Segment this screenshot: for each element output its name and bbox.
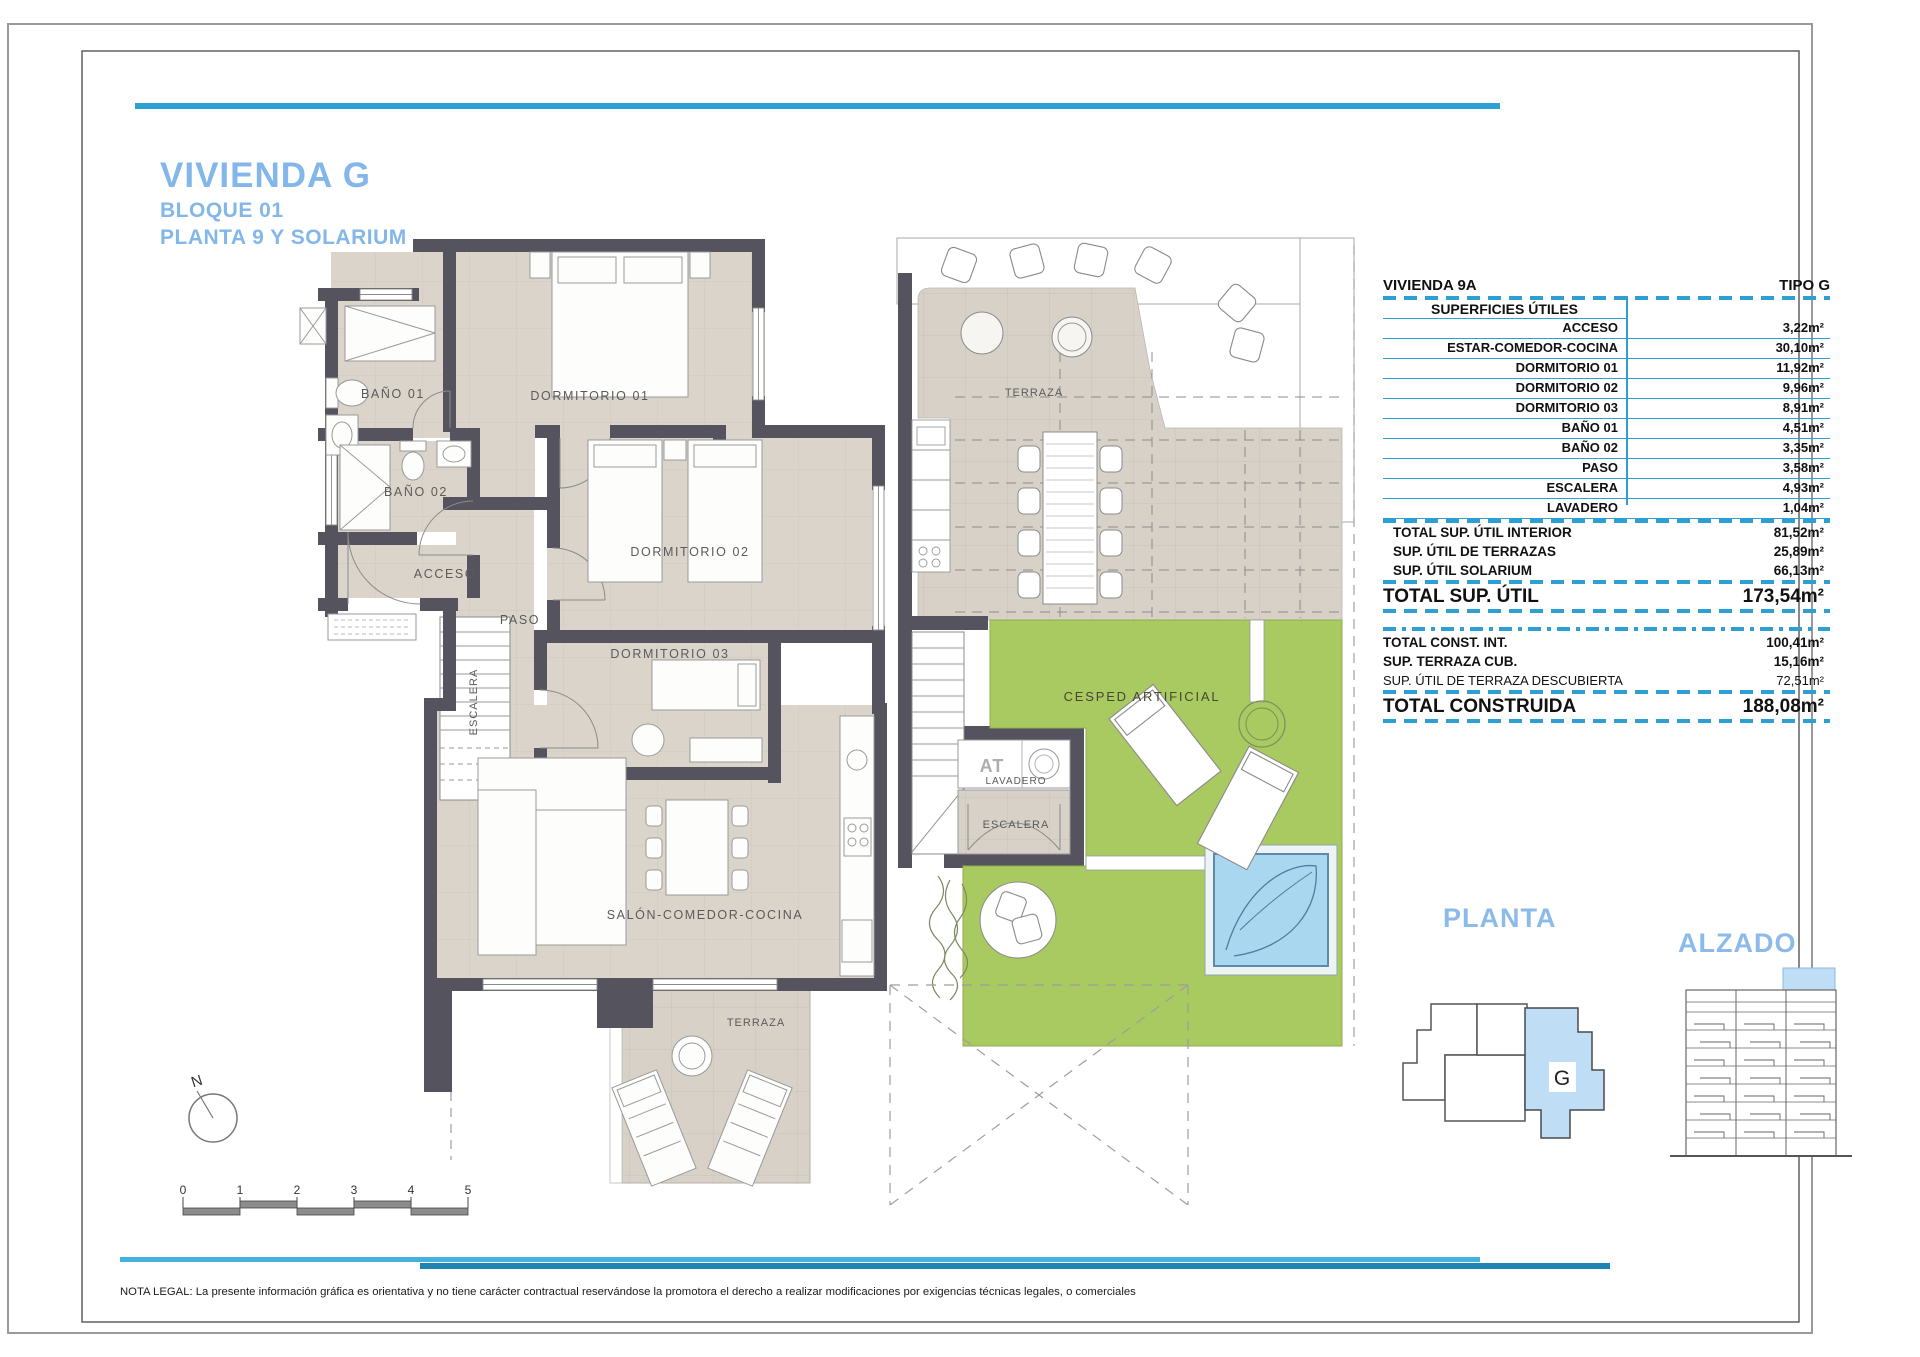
alzado-label: ALZADO (1678, 928, 1796, 959)
page-title: VIVIENDA G (160, 156, 407, 196)
jacuzzi (1205, 845, 1337, 975)
subtotal-row: TOTAL SUP. ÚTIL INTERIOR81,52m² (1383, 523, 1830, 542)
table-row: ESTAR-COMEDOR-COCINA30,10m² (1383, 339, 1830, 359)
solarium-lavadero-label: LAVADERO (986, 776, 1047, 787)
floor-subtitle: PLANTA 9 Y SOLARIUM (160, 226, 407, 250)
table-row: ESCALERA4,93m² (1383, 479, 1830, 499)
unit-type: TIPO G (1779, 277, 1830, 294)
room-label-bano02: BAÑO 02 (384, 485, 448, 499)
table-row: BAÑO 023,35m² (1383, 439, 1830, 459)
table-column-divider (1626, 296, 1628, 505)
keyplan-unit-letter: G (1554, 1067, 1570, 1090)
room-label-acceso: ACCESO (414, 567, 476, 581)
solarium-plan: AT LAVADERO ESCALERA (890, 238, 1354, 1205)
built-row: SUP. ÚTIL DE TERRAZA DESCUBIERTA72,51m² (1383, 671, 1830, 690)
table-row: LAVADERO1,04m² (1383, 499, 1830, 519)
svg-text:4: 4 (408, 1183, 415, 1197)
compass-north-label: N (189, 1072, 205, 1092)
room-label-dorm02: DORMITORIO 02 (630, 545, 749, 559)
room-label-terraza: TERRAZA (727, 1017, 785, 1029)
block-subtitle: BLOQUE 01 (160, 199, 407, 223)
title-block: VIVIENDA G BLOQUE 01 PLANTA 9 Y SOLARIUM (160, 156, 407, 250)
built-row: TOTAL CONST. INT.100,41m² (1383, 633, 1830, 652)
room-label-dorm03: DORMITORIO 03 (610, 647, 729, 661)
total-util-row: TOTAL SUP. ÚTIL173,54m² (1383, 584, 1830, 609)
solarium-cesped-label: CESPED ARTIFICIAL (1064, 689, 1221, 704)
separator (1383, 719, 1830, 723)
svg-text:2: 2 (294, 1183, 301, 1197)
compass: N (189, 1072, 237, 1142)
table-row: DORMITORIO 029,96m² (1383, 379, 1830, 399)
svg-text:5: 5 (465, 1183, 472, 1197)
built-row: SUP. TERRAZA CUB.15,16m² (1383, 652, 1830, 671)
keyplan-alzado (1670, 968, 1852, 1156)
legal-note: NOTA LEGAL: La presente información gráf… (120, 1286, 1620, 1298)
unit-name: VIVIENDA 9A (1383, 277, 1477, 294)
planta-label: PLANTA (1443, 903, 1557, 934)
subtotal-row: SUP. ÚTIL DE TERRAZAS25,89m² (1383, 542, 1830, 561)
room-label-paso: PASO (500, 613, 540, 627)
total-built-row: TOTAL CONSTRUIDA188,08m² (1383, 694, 1830, 719)
scale-bar: 0 1 2 3 4 5 (180, 1183, 472, 1215)
surface-areas-table: VIVIENDA 9A TIPO G SUPERFICIES ÚTILES AC… (1383, 270, 1830, 723)
room-label-dorm01: DORMITORIO 01 (530, 389, 649, 403)
svg-text:0: 0 (180, 1183, 187, 1197)
bottom-rule-dark (420, 1263, 1610, 1269)
bottom-rule-light (120, 1257, 1480, 1262)
svg-text:3: 3 (351, 1183, 358, 1197)
solarium-at-label: AT (980, 756, 1005, 776)
keyplan-planta: G (1403, 1004, 1604, 1138)
section-title: SUPERFICIES ÚTILES (1383, 300, 1626, 319)
room-label-bano01: BAÑO 01 (361, 387, 425, 401)
top-rule (135, 103, 1500, 109)
svg-text:1: 1 (237, 1183, 244, 1197)
solarium-terraza-label: TERRAZA (1005, 387, 1063, 399)
subtotal-row: SUP. ÚTIL SOLARIUM66,13m² (1383, 561, 1830, 580)
table-row: ACCESO3,22m² (1383, 319, 1830, 339)
table-row: DORMITORIO 038,91m² (1383, 399, 1830, 419)
apartment-plan: BAÑO 01 DORMITORIO 01 BAÑO 02 DORMITORIO… (300, 239, 887, 1186)
table-row: DORMITORIO 0111,92m² (1383, 359, 1830, 379)
solarium-escalera-label: ESCALERA (983, 819, 1050, 831)
table-row: PASO3,58m² (1383, 459, 1830, 479)
table-header: VIVIENDA 9A TIPO G (1383, 270, 1830, 296)
room-label-escalera: ESCALERA (468, 669, 480, 736)
stairs-solarium (912, 632, 964, 854)
room-label-salon: SALÓN-COMEDOR-COCINA (607, 907, 804, 922)
table-row: BAÑO 014,51m² (1383, 419, 1830, 439)
